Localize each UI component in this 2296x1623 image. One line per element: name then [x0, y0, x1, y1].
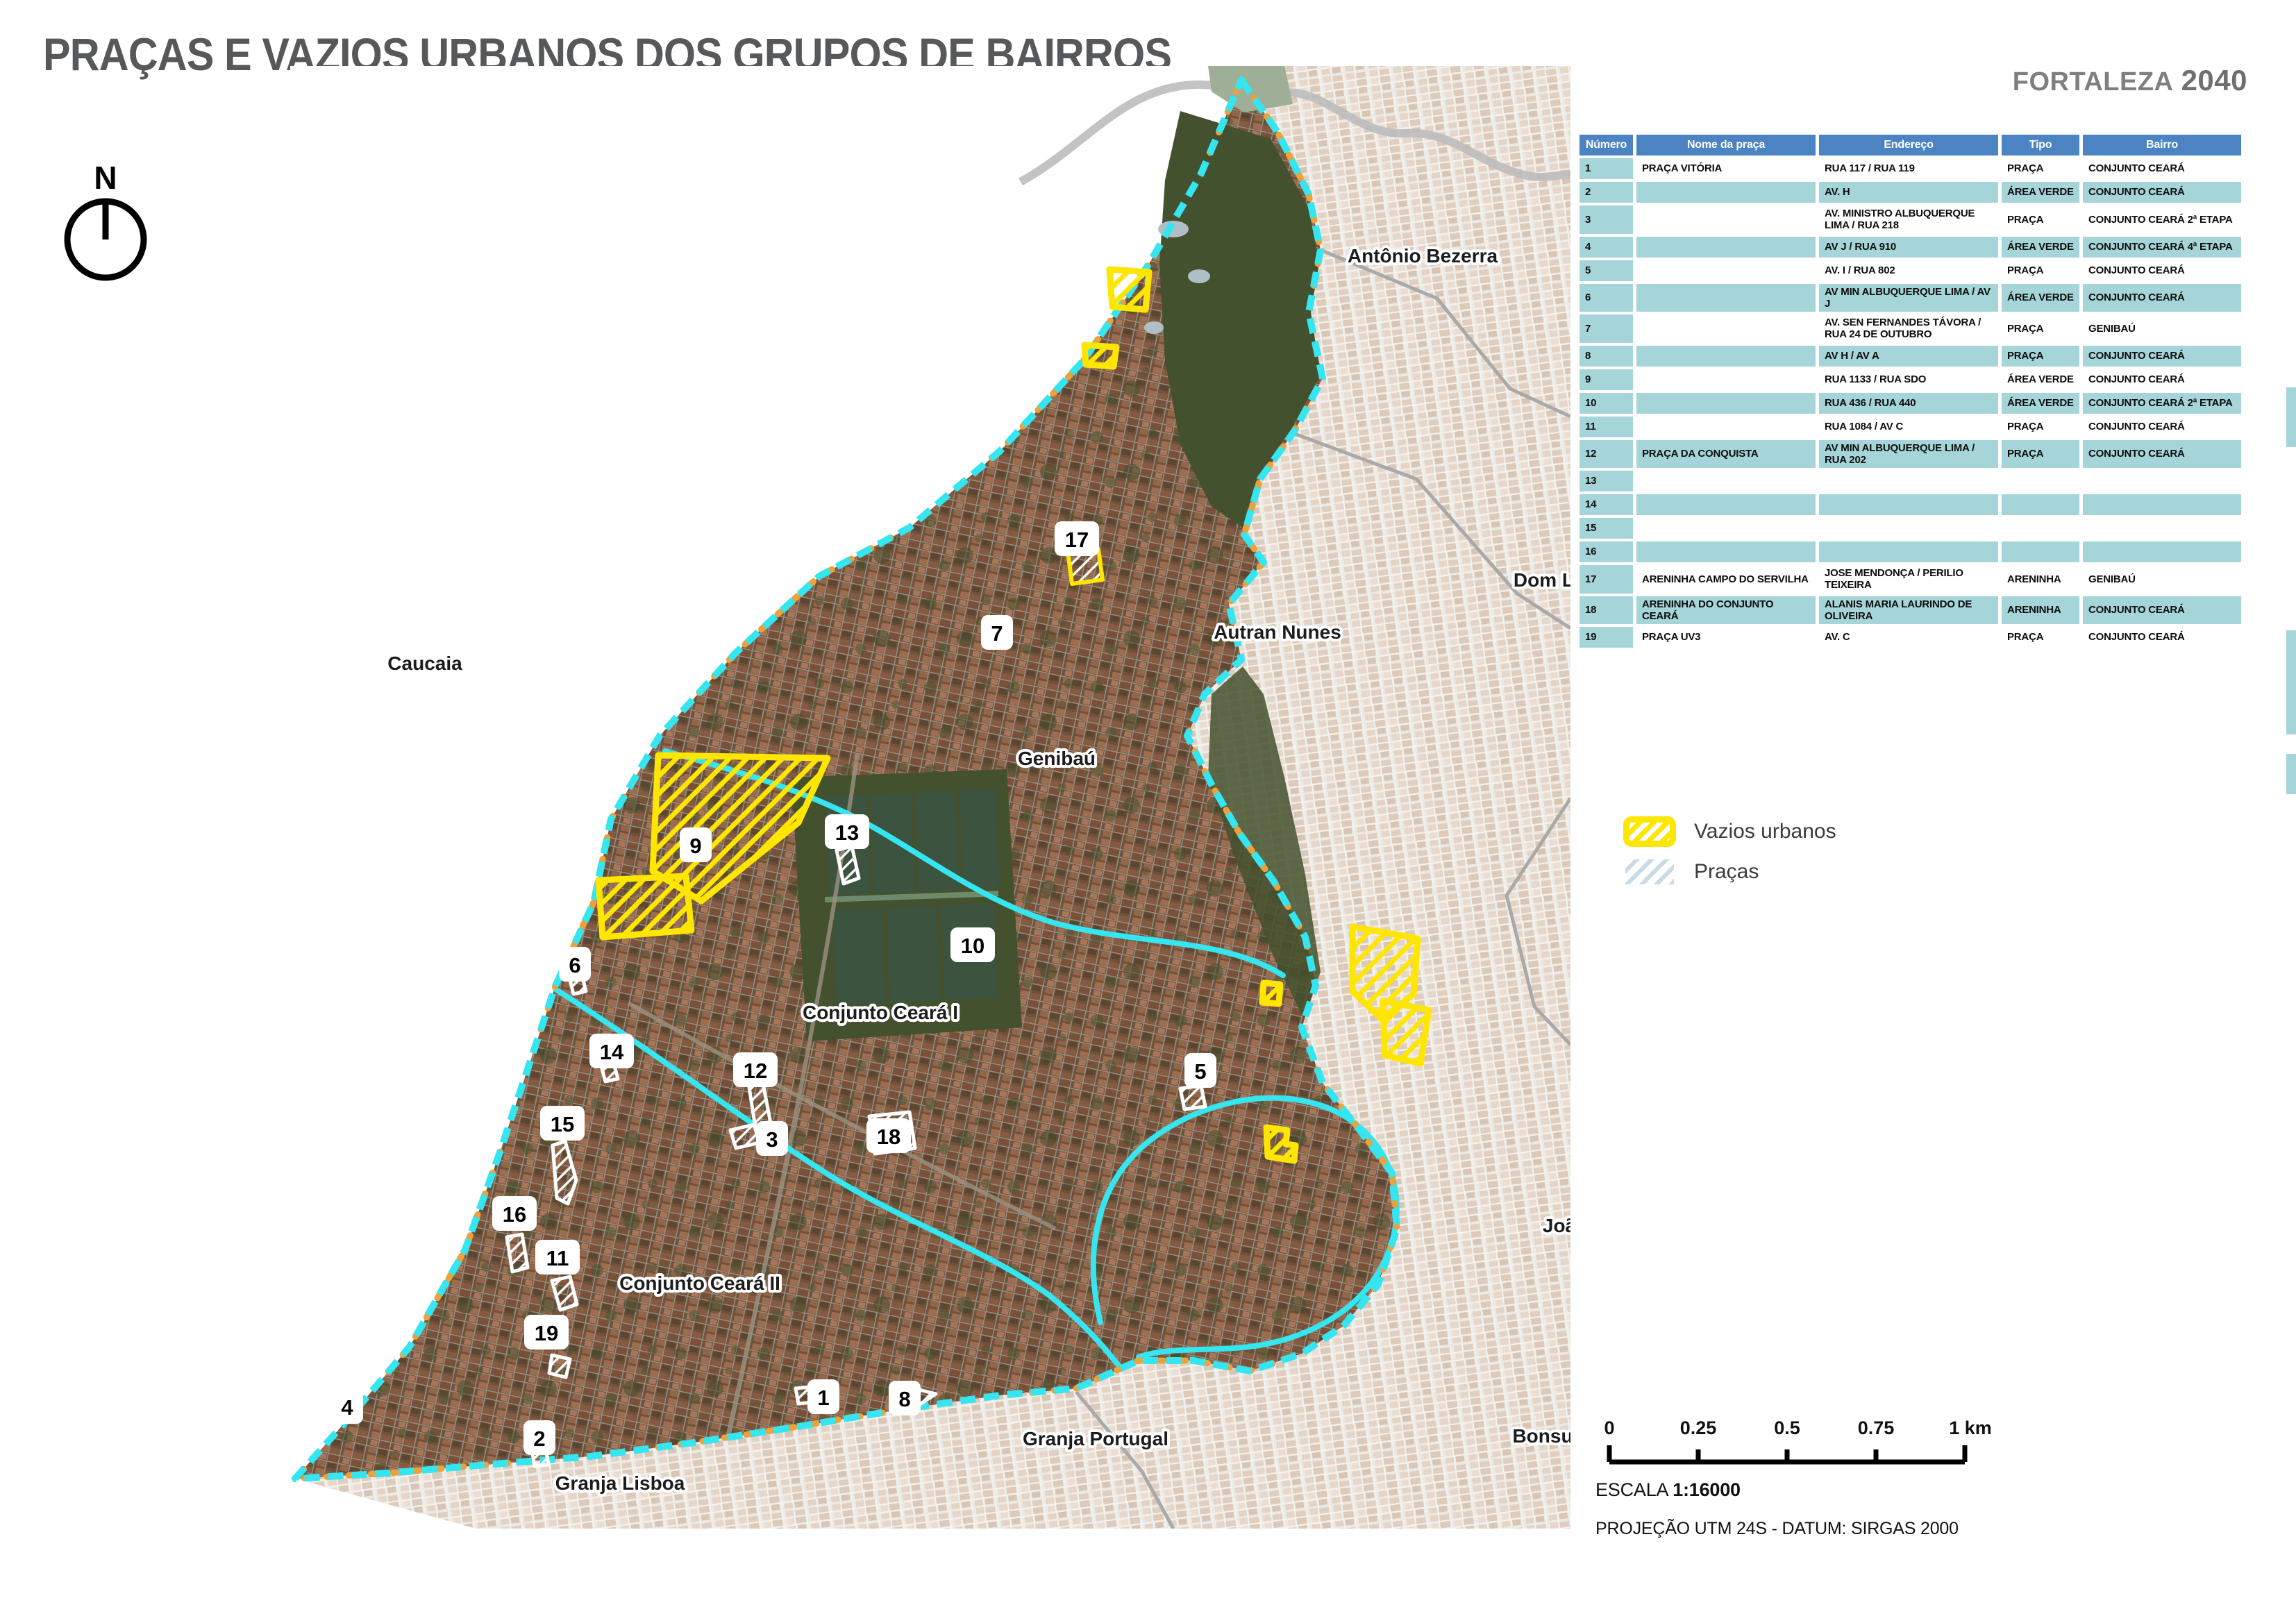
cell-tipo: ÁREA VERDE	[2002, 284, 2079, 312]
legend-item-vazios: Vazios urbanos	[1623, 816, 1836, 847]
map-label: Antônio Bezerra	[1348, 245, 1498, 267]
cell-tipo: PRAÇA	[2002, 260, 2079, 281]
cell-endereco: AV J / RUA 910	[1819, 237, 1998, 258]
table-row: 13	[1579, 471, 2241, 491]
svg-text:14: 14	[600, 1040, 624, 1064]
cell-numero: 12	[1579, 440, 1633, 469]
cell-nome: PRAÇA UV3	[1636, 627, 1816, 648]
cell-tipo: PRAÇA	[2002, 346, 2079, 367]
table-row: 16	[1579, 541, 2241, 562]
cell-endereco: RUA 436 / RUA 440	[1819, 393, 1998, 414]
cell-tipo: PRAÇA	[2002, 158, 2079, 179]
svg-text:16: 16	[503, 1202, 526, 1227]
cell-nome	[1636, 182, 1816, 203]
cell-endereco: AV MIN ALBUQUERQUE LIMA / RUA 202	[1819, 440, 1998, 469]
cell-bairro: CONJUNTO CEARÁ	[2083, 596, 2241, 625]
svg-text:7: 7	[991, 621, 1003, 646]
scale-block: 0 0.25 0.5 0.75 1 km ESCALA 1:16000 PROJ…	[1595, 1413, 2012, 1539]
map-marker-8: 8	[889, 1381, 920, 1415]
cell-endereco: AV. I / RUA 802	[1819, 260, 1998, 281]
cell-nome: PRAÇA DA CONQUISTA	[1636, 440, 1816, 469]
map-label: Bonsu	[1512, 1425, 1573, 1447]
cell-tipo	[2002, 494, 2079, 515]
map-label: Genibaú	[1018, 748, 1096, 769]
cell-tipo: ARENINHA	[2002, 596, 2079, 625]
map-label: Joã	[1543, 1215, 1577, 1236]
pracas-table-wrap: NúmeroNome da praçaEndereçoTipoBairro 1P…	[1576, 132, 2247, 650]
pracas-swatch-icon	[1625, 859, 1674, 884]
cell-endereco	[1819, 541, 1998, 562]
cell-nome: ARENINHA CAMPO DO SERVILHA	[1636, 565, 1816, 594]
table-row: 1PRAÇA VITÓRIARUA 117 / RUA 119PRAÇACONJ…	[1579, 158, 2241, 179]
cell-nome	[1636, 471, 1816, 491]
cell-tipo: ARENINHA	[2002, 565, 2079, 594]
cell-numero: 2	[1579, 182, 1633, 203]
svg-text:17: 17	[1065, 528, 1089, 552]
table-row: 10RUA 436 / RUA 440ÁREA VERDECONJUNTO CE…	[1579, 393, 2241, 414]
page-canvas: N	[0, 0, 2296, 1623]
cell-numero: 17	[1579, 565, 1633, 594]
map-label: Granja Lisboa	[555, 1472, 685, 1494]
vazio-shape	[1262, 983, 1280, 1004]
cell-numero: 19	[1579, 627, 1633, 648]
vazio-shape	[598, 876, 692, 937]
cell-nome	[1636, 417, 1816, 437]
cell-endereco	[1819, 494, 1998, 515]
cell-bairro: CONJUNTO CEARÁ	[2083, 158, 2241, 179]
column-header: Bairro	[2083, 135, 2241, 155]
cell-bairro: CONJUNTO CEARÁ	[2083, 440, 2241, 469]
cell-nome: ARENINHA DO CONJUNTO CEARÁ	[1636, 596, 1816, 625]
cell-bairro: CONJUNTO CEARÁ	[2083, 346, 2241, 367]
map-marker-9: 9	[680, 828, 711, 861]
map-marker-6: 6	[560, 948, 590, 981]
svg-text:18: 18	[877, 1125, 900, 1149]
cell-bairro: CONJUNTO CEARÁ	[2083, 627, 2241, 648]
cell-numero: 15	[1579, 518, 1633, 539]
map-marker-2: 2	[524, 1421, 555, 1454]
map-marker-1: 1	[808, 1380, 839, 1413]
svg-text:2: 2	[533, 1427, 545, 1451]
cell-tipo	[2002, 471, 2079, 491]
table-row: 15	[1579, 518, 2241, 539]
cell-numero: 7	[1579, 314, 1633, 343]
cell-bairro: CONJUNTO CEARÁ	[2083, 417, 2241, 437]
cell-bairro: CONJUNTO CEARÁ	[2083, 260, 2241, 281]
cell-endereco: RUA 1084 / AV C	[1819, 417, 1998, 437]
cell-numero: 14	[1579, 494, 1633, 515]
svg-text:19: 19	[535, 1321, 558, 1345]
cell-tipo	[2002, 518, 2079, 539]
svg-text:9: 9	[689, 834, 701, 858]
legend-item-pracas: Praças	[1623, 857, 1836, 887]
cell-bairro	[2083, 541, 2241, 562]
column-header: Número	[1579, 135, 1633, 155]
cell-bairro: CONJUNTO CEARÁ	[2083, 284, 2241, 312]
cell-tipo: PRAÇA	[2002, 417, 2079, 437]
cell-nome	[1636, 284, 1816, 312]
svg-text:4: 4	[341, 1395, 353, 1420]
cell-numero: 11	[1579, 417, 1633, 437]
cell-nome	[1636, 314, 1816, 343]
pracas-table: NúmeroNome da praçaEndereçoTipoBairro 1P…	[1576, 132, 2245, 650]
svg-text:5: 5	[1194, 1059, 1206, 1084]
cell-bairro: GENIBAÚ	[2083, 314, 2241, 343]
praca-shape	[507, 1234, 528, 1272]
pond-small	[1188, 269, 1210, 283]
svg-text:13: 13	[835, 821, 859, 845]
cell-nome	[1636, 541, 1816, 562]
svg-text:8: 8	[898, 1387, 910, 1411]
map-marker-18: 18	[867, 1119, 910, 1152]
map-marker-7: 7	[982, 616, 1012, 649]
map-legend: Vazios urbanos Praças	[1623, 816, 1836, 897]
cell-bairro: CONJUNTO CEARÁ 2ª ETAPA	[2083, 393, 2241, 414]
table-row: 2AV. HÁREA VERDECONJUNTO CEARÁ	[1579, 182, 2241, 203]
cell-nome: PRAÇA VITÓRIA	[1636, 158, 1816, 179]
map-marker-4: 4	[332, 1390, 362, 1423]
table-row: 11RUA 1084 / AV CPRAÇACONJUNTO CEARÁ	[1579, 417, 2241, 437]
table-row: 17ARENINHA CAMPO DO SERVILHAJOSE MENDONÇ…	[1579, 565, 2241, 594]
cell-endereco: AV. H	[1819, 182, 1998, 203]
cell-tipo: PRAÇA	[2002, 440, 2079, 469]
table-row: 18ARENINHA DO CONJUNTO CEARÁALANIS MARIA…	[1579, 596, 2241, 625]
vazio-shape	[1084, 345, 1116, 367]
vazios-swatch-icon	[1623, 816, 1676, 847]
map-marker-13: 13	[826, 815, 869, 848]
table-row: 9RUA 1133 / RUA SDOÁREA VERDECONJUNTO CE…	[1579, 369, 2241, 390]
cell-bairro: CONJUNTO CEARÁ	[2083, 369, 2241, 390]
map-marker-19: 19	[525, 1315, 568, 1349]
cell-bairro	[2083, 518, 2241, 539]
map-label: Autran Nunes	[1214, 621, 1341, 643]
map-marker-15: 15	[541, 1107, 584, 1140]
lagoon-complex	[791, 769, 1022, 1041]
map-marker-17: 17	[1055, 522, 1098, 555]
cell-numero: 1	[1579, 158, 1633, 179]
table-row: 4AV J / RUA 910ÁREA VERDECONJUNTO CEARÁ …	[1579, 237, 2241, 258]
map-label: Granja Portugal	[1023, 1428, 1168, 1449]
scale-tick-label: 0	[1604, 1418, 1614, 1438]
cell-bairro: GENIBAÚ	[2083, 565, 2241, 594]
escala-value: 1:16000	[1673, 1479, 1741, 1500]
praca-shape	[549, 1355, 570, 1377]
map-marker-5: 5	[1185, 1054, 1216, 1087]
column-header: Tipo	[2002, 135, 2079, 155]
cell-numero: 10	[1579, 393, 1633, 414]
legend-label: Praças	[1694, 860, 1759, 884]
svg-text:15: 15	[551, 1112, 574, 1136]
north-compass-icon: N	[67, 160, 144, 278]
cell-endereco	[1819, 518, 1998, 539]
cell-tipo: ÁREA VERDE	[2002, 369, 2079, 390]
cell-nome	[1636, 494, 1816, 515]
cell-tipo: ÁREA VERDE	[2002, 237, 2079, 258]
cell-tipo: PRAÇA	[2002, 314, 2079, 343]
cell-bairro: CONJUNTO CEARÁ 2ª ETAPA	[2083, 205, 2241, 234]
cell-endereco	[1819, 471, 1998, 491]
map-marker-14: 14	[590, 1034, 633, 1068]
map-label: Conjunto Ceará I	[803, 1002, 958, 1023]
edge-strip	[2286, 387, 2296, 447]
table-row: 14	[1579, 494, 2241, 515]
cell-numero: 8	[1579, 346, 1633, 367]
cell-numero: 5	[1579, 260, 1633, 281]
compass-n-label: N	[94, 160, 117, 196]
vazio-shape	[1383, 1001, 1429, 1063]
cell-tipo: ÁREA VERDE	[2002, 182, 2079, 203]
scale-tick-label: 0.25	[1680, 1418, 1717, 1438]
svg-text:11: 11	[546, 1246, 569, 1270]
scale-tick-label: 0.5	[1774, 1418, 1800, 1438]
svg-text:6: 6	[569, 953, 580, 977]
cell-numero: 9	[1579, 369, 1633, 390]
cell-nome	[1636, 260, 1816, 281]
cell-nome	[1636, 518, 1816, 539]
cell-tipo: PRAÇA	[2002, 205, 2079, 234]
legend-label: Vazios urbanos	[1694, 820, 1836, 843]
table-row: 12PRAÇA DA CONQUISTAAV MIN ALBUQUERQUE L…	[1579, 440, 2241, 469]
column-header: Endereço	[1819, 135, 1998, 155]
table-row: 8AV H / AV APRAÇACONJUNTO CEARÁ	[1579, 346, 2241, 367]
map-marker-3: 3	[757, 1122, 787, 1155]
praca-shape	[730, 1125, 760, 1148]
cell-endereco: AV MIN ALBUQUERQUE LIMA / AV J	[1819, 284, 1998, 312]
table-row: 7AV. SEN FERNANDES TÁVORA / RUA 24 DE OU…	[1579, 314, 2241, 343]
cell-numero: 3	[1579, 205, 1633, 234]
cell-nome	[1636, 346, 1816, 367]
vazio-shape	[1109, 269, 1149, 310]
cell-endereco: AV. C	[1819, 627, 1998, 648]
cell-numero: 18	[1579, 596, 1633, 625]
cell-numero: 13	[1579, 471, 1633, 491]
cell-endereco: RUA 1133 / RUA SDO	[1819, 369, 1998, 390]
cell-numero: 16	[1579, 541, 1633, 562]
cell-endereco: ALANIS MARIA LAURINDO DE OLIVEIRA	[1819, 596, 1998, 625]
cell-bairro	[2083, 471, 2241, 491]
cell-tipo: PRAÇA	[2002, 627, 2079, 648]
cell-numero: 4	[1579, 237, 1633, 258]
map-label: Conjunto Ceará II	[619, 1272, 780, 1294]
table-header-row: NúmeroNome da praçaEndereçoTipoBairro	[1579, 135, 2241, 155]
column-header: Nome da praça	[1636, 135, 1816, 155]
cell-nome	[1636, 237, 1816, 258]
cell-endereco: RUA 117 / RUA 119	[1819, 158, 1998, 179]
table-row: 5AV. I / RUA 802PRAÇACONJUNTO CEARÁ	[1579, 260, 2241, 281]
scale-tick-label: 0.75	[1858, 1418, 1895, 1438]
svg-text:3: 3	[766, 1127, 778, 1152]
cell-endereco: AV. SEN FERNANDES TÁVORA / RUA 24 DE OUT…	[1819, 314, 1998, 343]
table-row: 19PRAÇA UV3AV. CPRAÇACONJUNTO CEARÁ	[1579, 627, 2241, 648]
edge-strip	[2286, 630, 2296, 734]
pond-small	[1144, 321, 1164, 334]
map-marker-16: 16	[493, 1197, 536, 1230]
table-row: 3AV. MINISTRO ALBUQUERQUE LIMA / RUA 218…	[1579, 205, 2241, 234]
cell-numero: 6	[1579, 284, 1633, 312]
svg-text:1: 1	[817, 1386, 829, 1410]
edge-strip	[2286, 754, 2296, 794]
escala-label: ESCALA	[1595, 1479, 1668, 1500]
cell-bairro: CONJUNTO CEARÁ 4ª ETAPA	[2083, 237, 2241, 258]
map-label: Dom Lu	[1514, 569, 1586, 591]
escala-text: ESCALA 1:16000	[1595, 1479, 2012, 1501]
map-marker-10: 10	[951, 928, 994, 961]
projection-text: PROJEÇÃO UTM 24S - DATUM: SIRGAS 2000	[1595, 1519, 2012, 1539]
map-marker-12: 12	[734, 1053, 777, 1086]
cell-nome	[1636, 205, 1816, 234]
scale-tick-label: 1 km	[1949, 1418, 1992, 1438]
cell-tipo	[2002, 541, 2079, 562]
cell-tipo: ÁREA VERDE	[2002, 393, 2079, 414]
map-marker-11: 11	[536, 1241, 579, 1274]
svg-text:12: 12	[744, 1059, 767, 1083]
cell-endereco: JOSE MENDONÇA / PERILIO TEIXEIRA	[1819, 565, 1998, 594]
cell-bairro	[2083, 494, 2241, 515]
cell-endereco: AV. MINISTRO ALBUQUERQUE LIMA / RUA 218	[1819, 205, 1998, 234]
praca-shape	[1180, 1086, 1205, 1109]
map-label: Caucaia	[387, 653, 462, 674]
cell-nome	[1636, 393, 1816, 414]
cell-nome	[1636, 369, 1816, 390]
cell-endereco: AV H / AV A	[1819, 346, 1998, 367]
svg-text:10: 10	[961, 934, 984, 958]
cell-bairro: CONJUNTO CEARÁ	[2083, 182, 2241, 203]
map-area: Antônio BezerraAutran NunesDom LuCaucaia…	[290, 66, 1586, 1531]
table-row: 6AV MIN ALBUQUERQUE LIMA / AV JÁREA VERD…	[1579, 284, 2241, 312]
scalebar: 0 0.25 0.5 0.75 1 km	[1595, 1413, 2012, 1472]
